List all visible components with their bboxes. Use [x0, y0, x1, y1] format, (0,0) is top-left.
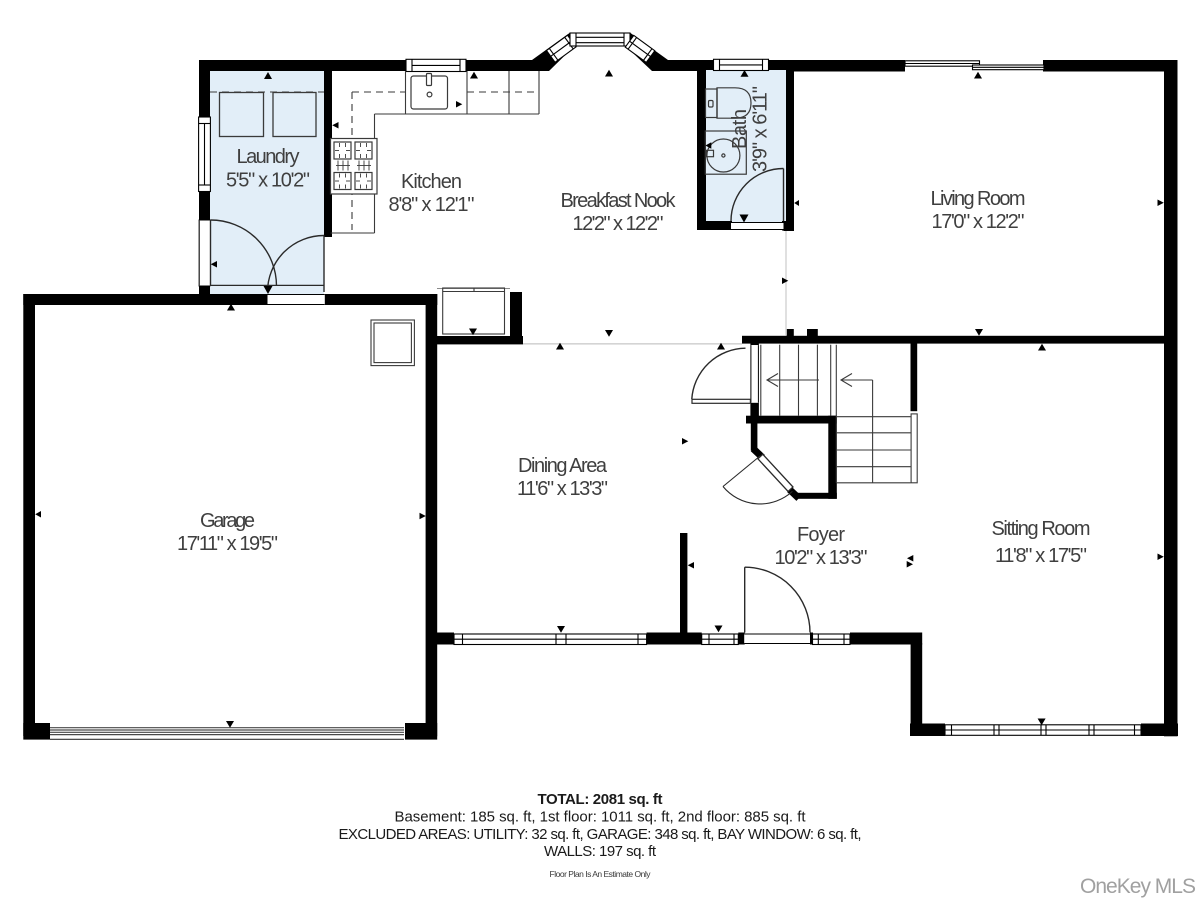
svg-text:Bath: Bath [729, 109, 751, 149]
svg-text:Basement: 185 sq. ft, 1st floo: Basement: 185 sq. ft, 1st floor: 1011 sq… [395, 809, 807, 826]
svg-text:TOTAL: 2081 sq. ft: TOTAL: 2081 sq. ft [538, 791, 663, 808]
svg-text:WALLS: 197 sq. ft: WALLS: 197 sq. ft [544, 843, 657, 860]
svg-text:3'9" x 6'11": 3'9" x 6'11" [750, 86, 772, 172]
svg-text:8'8" x 12'1": 8'8" x 12'1" [389, 194, 475, 216]
svg-text:Living Room: Living Room [931, 188, 1026, 210]
svg-text:Garage: Garage [200, 510, 255, 532]
svg-text:EXCLUDED AREAS: UTILITY: 32 sq: EXCLUDED AREAS: UTILITY: 32 sq. ft, GARA… [339, 826, 862, 843]
svg-text:Laundry: Laundry [237, 146, 300, 168]
svg-text:12'2" x 12'2": 12'2" x 12'2" [573, 213, 664, 235]
svg-text:Floor Plan Is An Estimate Only: Floor Plan Is An Estimate Only [550, 869, 652, 879]
svg-text:17'0" x 12'2": 17'0" x 12'2" [932, 211, 1025, 233]
svg-text:11'6" x 13'3": 11'6" x 13'3" [517, 478, 608, 500]
svg-text:Breakfast Nook: Breakfast Nook [561, 190, 677, 212]
svg-text:11'8" x 17'5": 11'8" x 17'5" [995, 545, 1087, 567]
svg-text:5'5" x 10'2": 5'5" x 10'2" [226, 170, 310, 192]
svg-text:Kitchen: Kitchen [401, 171, 462, 193]
svg-text:OneKey MLS: OneKey MLS [1080, 875, 1196, 898]
svg-text:10'2" x 13'3": 10'2" x 13'3" [775, 547, 868, 569]
svg-text:Foyer: Foyer [797, 524, 845, 546]
svg-text:17'11" x 19'5": 17'11" x 19'5" [177, 533, 278, 555]
svg-text:Dining Area: Dining Area [518, 455, 608, 477]
svg-text:Sitting Room: Sitting Room [992, 518, 1091, 540]
